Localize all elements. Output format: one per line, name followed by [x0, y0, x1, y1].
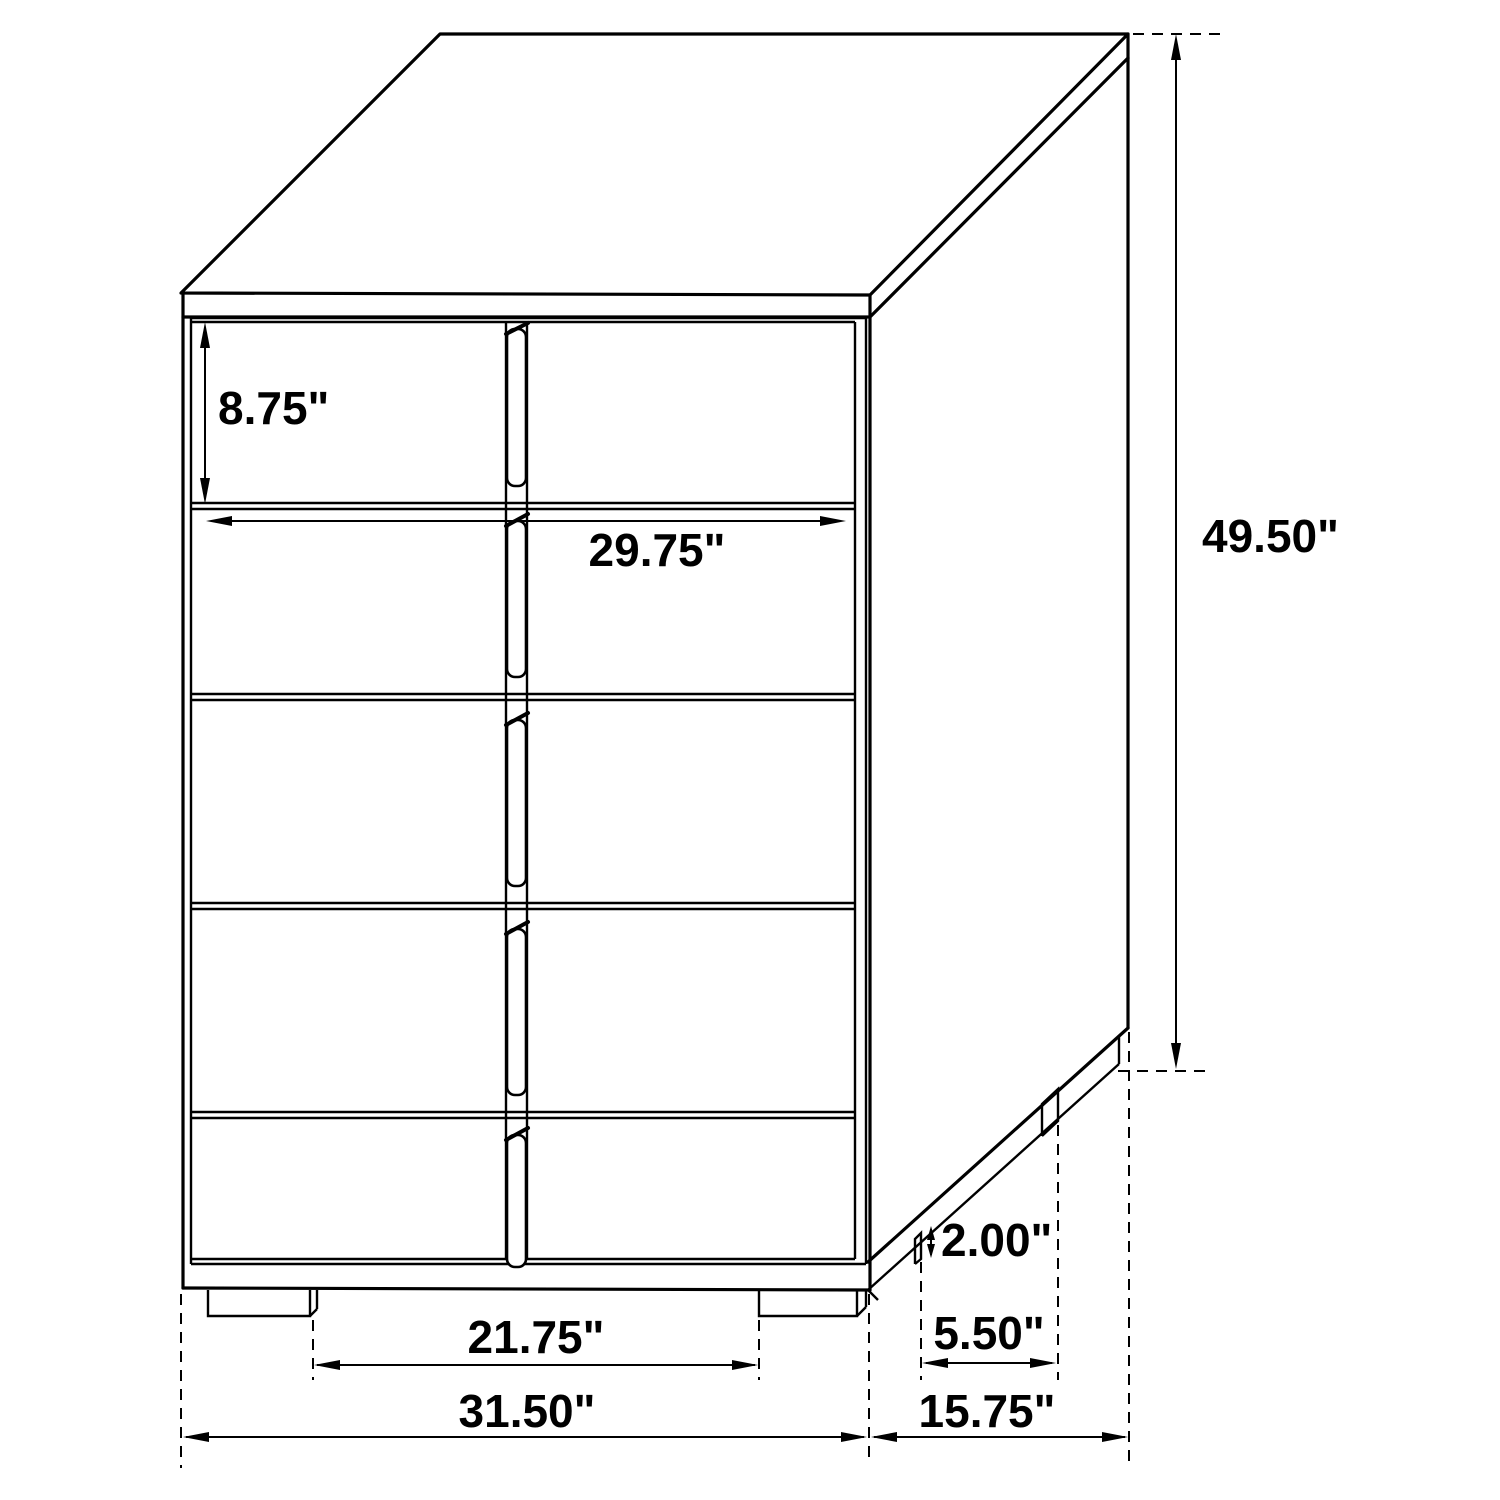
dim-foot-spacing-width: 21.75": [314, 1311, 758, 1370]
cabinet-top: [181, 34, 1128, 317]
drawer-bottom-rail: [191, 1259, 866, 1264]
dim-drawer-height: 8.75": [200, 322, 329, 504]
front-right-foot: [759, 1290, 866, 1316]
dim-label-foot-spacing-depth: 5.50": [933, 1307, 1044, 1359]
cabinet-side-panel: [868, 34, 1128, 1300]
dim-label-overall-depth: 15.75": [919, 1385, 1056, 1437]
dim-label-drawer-width: 29.75": [589, 524, 726, 576]
dim-label-foot-spacing-width: 21.75": [468, 1311, 605, 1363]
dim-label-overall-height: 49.50": [1202, 510, 1339, 562]
drawer-handles: [506, 323, 528, 1267]
dim-overall-width: 31.50": [183, 1385, 867, 1442]
handle-row-1: [507, 329, 526, 486]
cabinet-feet: [208, 1089, 1058, 1316]
extension-lines: [181, 34, 1228, 1468]
dimension-diagram-canvas: 8.75" 29.75" 49.50" 2.00" 5.50" 21.75": [0, 0, 1500, 1500]
handle-row-3: [507, 720, 526, 886]
dim-overall-depth: 15.75": [871, 1385, 1128, 1442]
separator-3: [191, 903, 855, 909]
side-front-foot: [915, 1233, 921, 1264]
handle-row-2: [507, 521, 526, 677]
separator-2: [191, 694, 855, 700]
front-left-foot: [208, 1290, 317, 1316]
dim-label-foot-height: 2.00": [941, 1214, 1052, 1266]
separator-1: [191, 503, 855, 509]
chest-dimension-drawing: 8.75" 29.75" 49.50" 2.00" 5.50" 21.75": [0, 0, 1500, 1500]
front-bottom-edge: [183, 1288, 870, 1290]
dim-foot-spacing-depth: 5.50": [922, 1307, 1056, 1368]
side-back-foot: [1042, 1089, 1058, 1136]
drawer-separators: [191, 322, 866, 1264]
handle-row-4: [507, 929, 526, 1095]
handle-row-5: [507, 1135, 526, 1267]
dim-foot-height: 2.00": [927, 1214, 1052, 1266]
separator-4: [191, 1112, 855, 1118]
dim-overall-height: 49.50": [1171, 34, 1339, 1069]
dim-label-overall-width: 31.50": [459, 1385, 596, 1437]
top-slab-right-edge: [870, 58, 1128, 317]
dim-label-drawer-height: 8.75": [218, 382, 329, 434]
top-face: [181, 34, 1128, 295]
